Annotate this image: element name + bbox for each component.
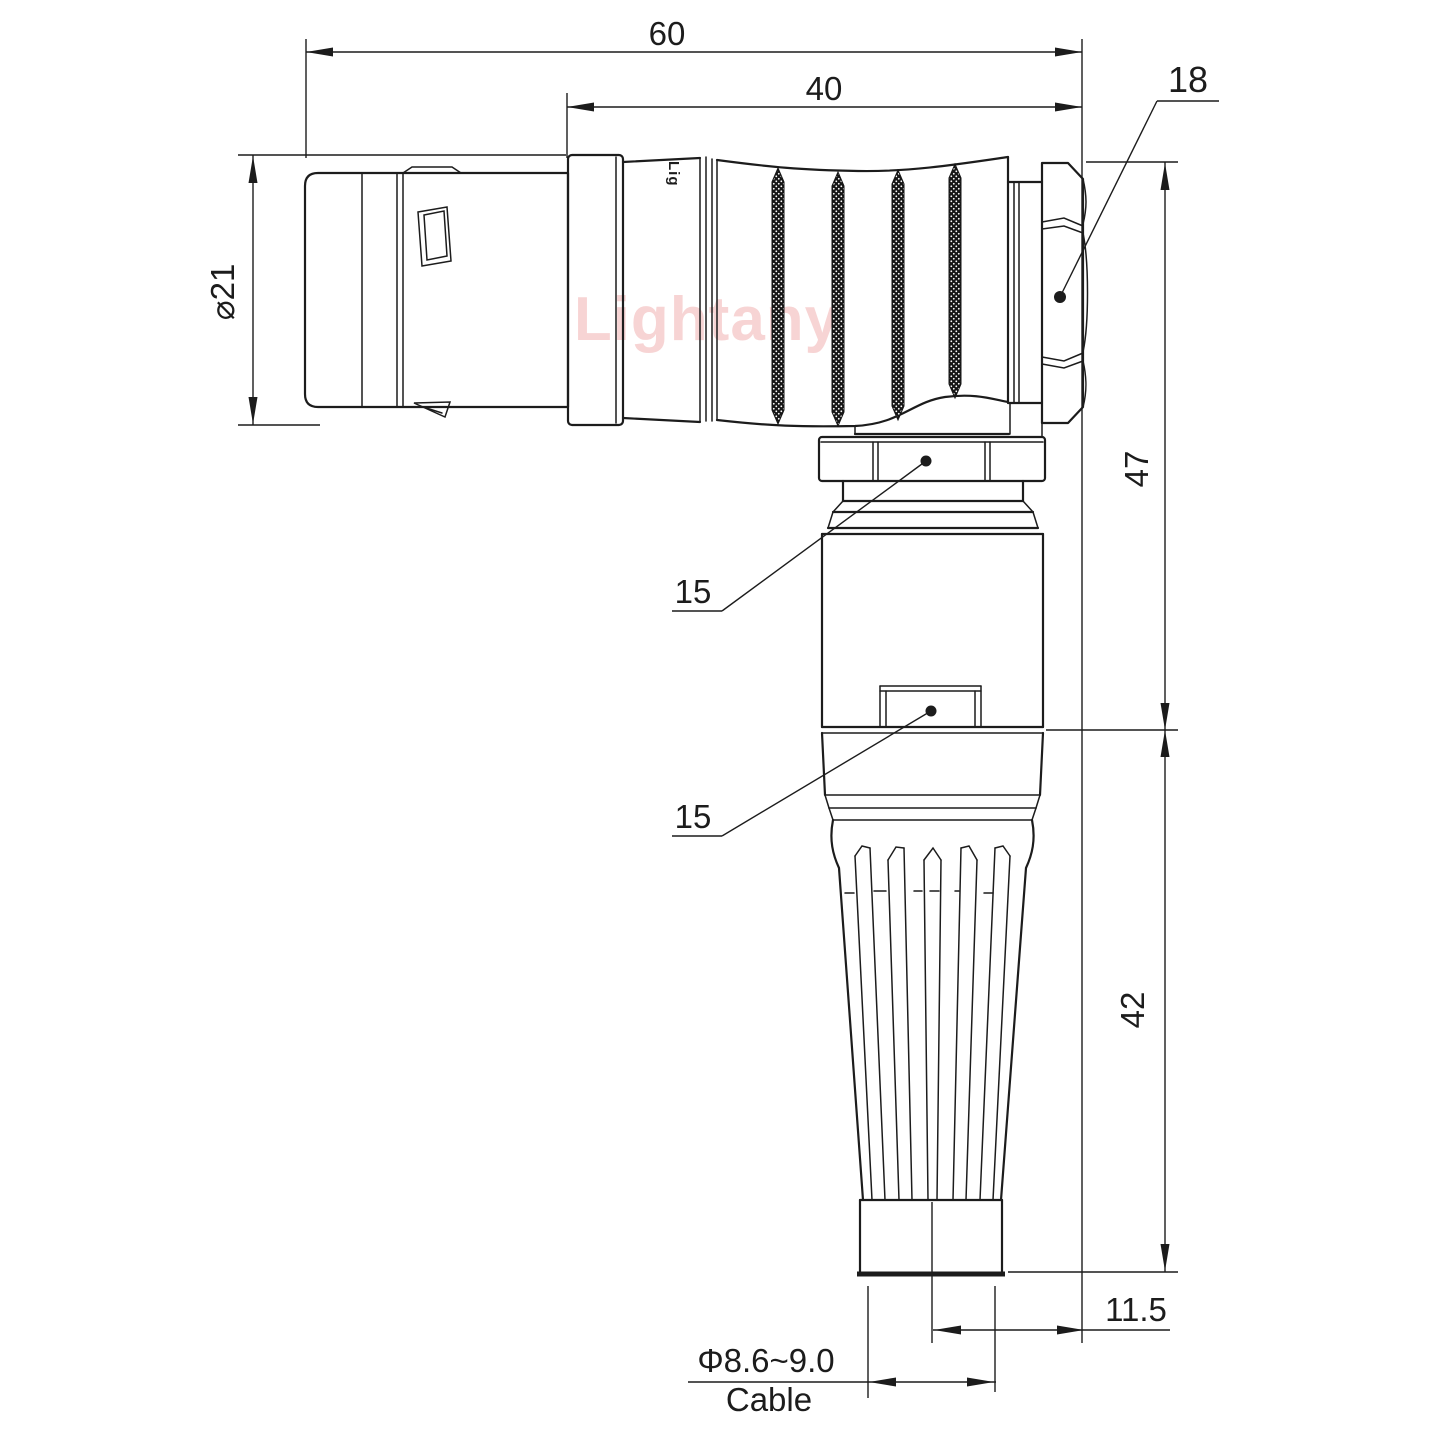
elbow-lower-body bbox=[822, 733, 1043, 820]
callout-detent: 15 bbox=[675, 798, 712, 835]
cable-entry-collar bbox=[857, 1200, 1005, 1274]
dim-hex-nut-size: 18 bbox=[1168, 59, 1208, 100]
label-cable: Cable bbox=[726, 1381, 812, 1418]
dim-rear-length: 40 bbox=[806, 70, 843, 107]
elbow-hex-nut bbox=[819, 437, 1045, 481]
brand-engraving-text: Lig bbox=[665, 161, 682, 187]
dim-axis-offset: 11.5 bbox=[1105, 1291, 1167, 1328]
dimension-lines bbox=[238, 39, 1219, 1398]
strain-relief-boot bbox=[831, 820, 1033, 1200]
watermark-text: Lightany bbox=[574, 285, 840, 354]
dim-elbow-height: 47 bbox=[1118, 451, 1155, 488]
elbow-vertical-body bbox=[819, 403, 1045, 1274]
technical-drawing-page: Lightany bbox=[0, 0, 1440, 1440]
connector-elbow-drawing: Lightany bbox=[0, 0, 1440, 1440]
dim-cable-range: Φ8.6~9.0 bbox=[697, 1342, 834, 1379]
dim-overall-length: 60 bbox=[649, 15, 686, 52]
elbow-cylinder bbox=[822, 534, 1043, 733]
callout-nut-top: 15 bbox=[675, 573, 712, 610]
dim-shell-diameter: ⌀21 bbox=[204, 264, 241, 321]
back-hex-nut bbox=[1042, 163, 1088, 423]
dim-boot-length: 42 bbox=[1114, 992, 1151, 1029]
